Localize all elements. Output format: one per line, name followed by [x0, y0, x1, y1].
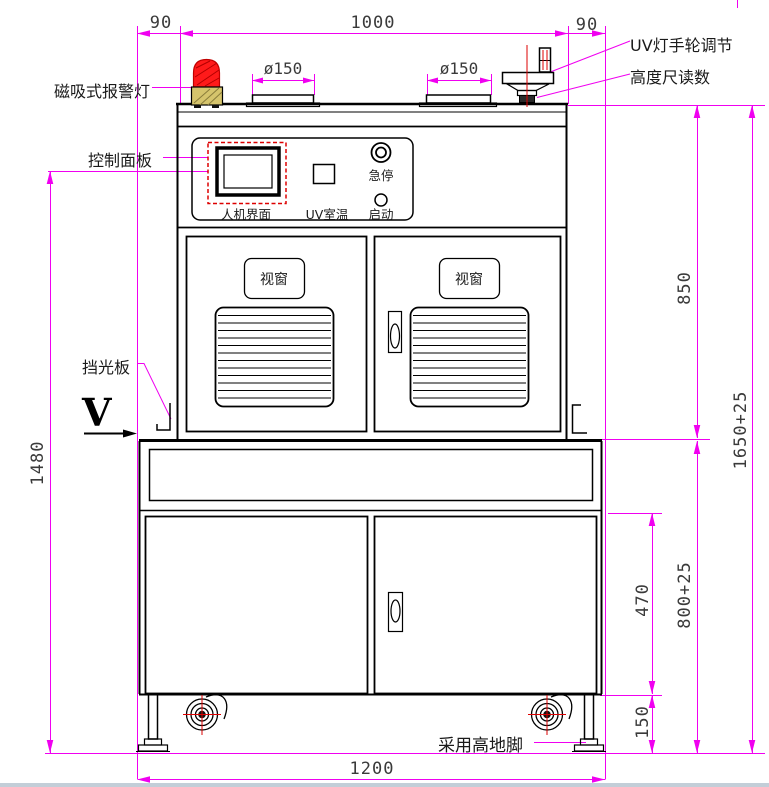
upper-left-door — [187, 237, 367, 432]
dim-base-height: 800+25 — [675, 555, 695, 635]
lower-left-door — [146, 517, 368, 694]
dim-base-width: 1200 — [342, 759, 402, 779]
uv-temp-meter — [314, 165, 335, 184]
label-window-left: 视窗 — [244, 269, 304, 289]
dim-upper-height: 850 — [675, 263, 695, 313]
dim-foot-clearance: 150 — [633, 697, 653, 747]
caster-left — [187, 695, 227, 730]
label-start: 启动 — [360, 204, 402, 223]
label-hmi: 人机界面 — [215, 204, 277, 223]
dim-panel-height: 1480 — [28, 428, 48, 498]
label-height-gauge: 高度尺读数 — [630, 64, 710, 88]
dim-right-offset: 90 — [567, 15, 607, 35]
label-uv-handwheel: UV灯手轮调节 — [630, 32, 733, 56]
drawing-linework — [0, 0, 769, 787]
machine-body — [136, 48, 606, 752]
dimension-lines — [45, 0, 765, 780]
label-emergency-stop: 急停 — [360, 165, 402, 184]
label-uv-temp: UV室温 — [296, 204, 358, 223]
dim-left-offset: 90 — [141, 13, 181, 33]
louver-right — [411, 308, 529, 407]
bottom-edge — [0, 783, 769, 787]
label-window-right: 视窗 — [439, 269, 499, 289]
uv-handwheel-assembly — [503, 48, 554, 103]
view-marker-letter: V — [82, 390, 111, 435]
label-alarm-light: 磁吸式报警灯 — [54, 78, 150, 102]
label-light-shield: 挡光板 — [82, 354, 130, 378]
lower-right-door — [375, 517, 597, 694]
dim-flange-left: ø150 — [252, 59, 314, 78]
base-top-panel — [150, 450, 593, 501]
cad-drawing: 90 1000 90 ø150 ø150 1200 1480 850 1650+… — [0, 0, 769, 787]
alarm-beacon-icon — [192, 60, 223, 109]
caster-right — [532, 695, 572, 730]
dimension-arrowheads — [47, 30, 756, 783]
upper-right-door — [375, 237, 561, 432]
light-shield-right — [573, 405, 588, 433]
light-shield-left — [157, 403, 170, 430]
label-control-panel: 控制面板 — [88, 147, 152, 171]
label-feet-note: 采用高地脚 — [438, 731, 523, 756]
emergency-stop-button — [372, 143, 391, 162]
dim-lower-door-height: 470 — [633, 575, 653, 625]
dim-top-width: 1000 — [343, 13, 403, 33]
leveling-foot-left — [136, 694, 170, 752]
dim-flange-right: ø150 — [427, 59, 491, 78]
dim-total-height: 1650+25 — [731, 390, 751, 470]
louver-left — [216, 308, 334, 407]
